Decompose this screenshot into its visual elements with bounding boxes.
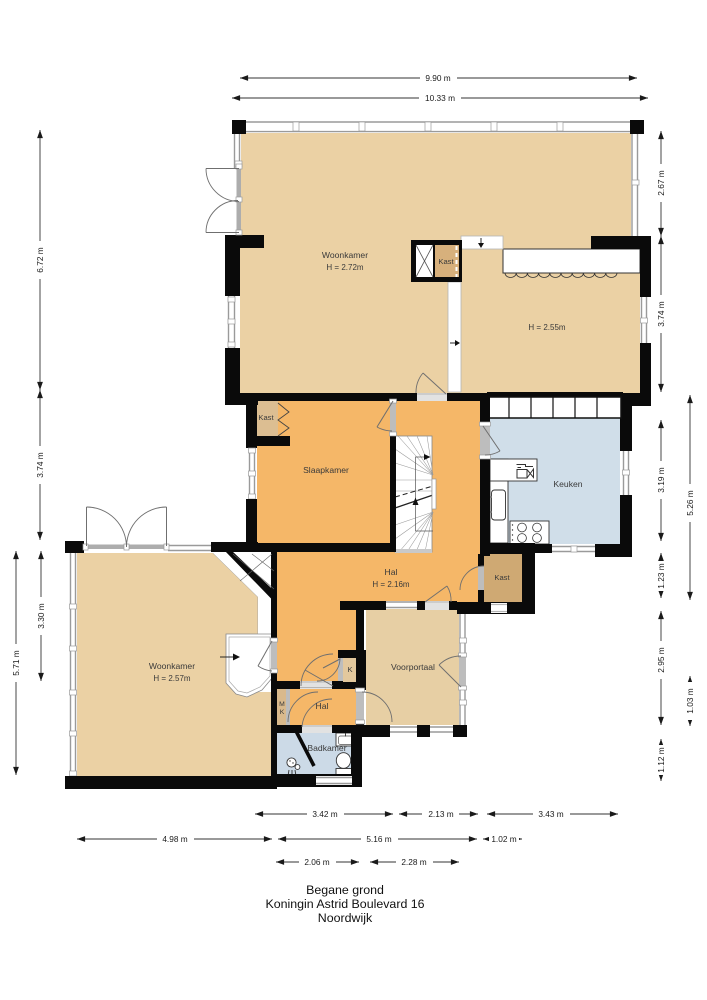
svg-text:Kast: Kast (494, 573, 510, 582)
svg-text:6.72 m: 6.72 m (35, 247, 45, 272)
svg-text:Woonkamer: Woonkamer (149, 661, 195, 671)
svg-text:Voorportaal: Voorportaal (391, 662, 435, 672)
svg-text:Badkamer: Badkamer (307, 743, 346, 753)
svg-text:Kast: Kast (438, 257, 454, 266)
svg-text:1.03 m: 1.03 m (685, 688, 695, 713)
svg-text:M: M (279, 701, 285, 708)
svg-text:10.33 m: 10.33 m (425, 93, 455, 103)
svg-text:9.90 m: 9.90 m (425, 73, 450, 83)
svg-text:Slaapkamer: Slaapkamer (303, 465, 349, 475)
svg-text:2.95 m: 2.95 m (656, 647, 666, 672)
svg-text:Noordwijk: Noordwijk (318, 911, 373, 925)
svg-text:Keuken: Keuken (553, 479, 582, 489)
svg-text:Hal: Hal (316, 701, 329, 711)
svg-text:2.28 m: 2.28 m (401, 857, 426, 867)
svg-text:Kast: Kast (258, 413, 274, 422)
svg-text:3.74 m: 3.74 m (35, 452, 45, 477)
svg-text:1.23 m: 1.23 m (656, 563, 666, 588)
svg-text:K: K (280, 709, 285, 716)
svg-text:4.98 m: 4.98 m (162, 834, 187, 844)
svg-text:3.42 m: 3.42 m (312, 809, 337, 819)
svg-text:2.13 m: 2.13 m (428, 809, 453, 819)
svg-text:H = 2.16m: H = 2.16m (372, 580, 409, 589)
svg-text:1.02 m: 1.02 m (491, 834, 516, 844)
svg-text:2.06 m: 2.06 m (304, 857, 329, 867)
svg-text:5.71 m: 5.71 m (11, 650, 21, 675)
svg-text:Begane grond: Begane grond (306, 883, 384, 897)
svg-text:K: K (347, 665, 352, 674)
svg-text:2.67 m: 2.67 m (656, 170, 666, 195)
svg-text:3.19 m: 3.19 m (656, 467, 666, 492)
svg-text:Koningin Astrid Boulevard 16: Koningin Astrid Boulevard 16 (265, 897, 424, 911)
svg-text:5.16 m: 5.16 m (366, 834, 391, 844)
svg-text:H = 2.57m: H = 2.57m (153, 674, 190, 683)
svg-text:5.26 m: 5.26 m (685, 490, 695, 515)
svg-text:Woonkamer: Woonkamer (322, 250, 368, 260)
svg-text:Hal: Hal (385, 567, 398, 577)
svg-text:3.43 m: 3.43 m (538, 809, 563, 819)
svg-text:3.30 m: 3.30 m (36, 603, 46, 628)
svg-text:H = 2.72m: H = 2.72m (326, 263, 363, 272)
svg-text:1.12 m: 1.12 m (656, 747, 666, 772)
svg-text:3.74 m: 3.74 m (656, 301, 666, 326)
svg-text:H = 2.55m: H = 2.55m (528, 323, 565, 332)
